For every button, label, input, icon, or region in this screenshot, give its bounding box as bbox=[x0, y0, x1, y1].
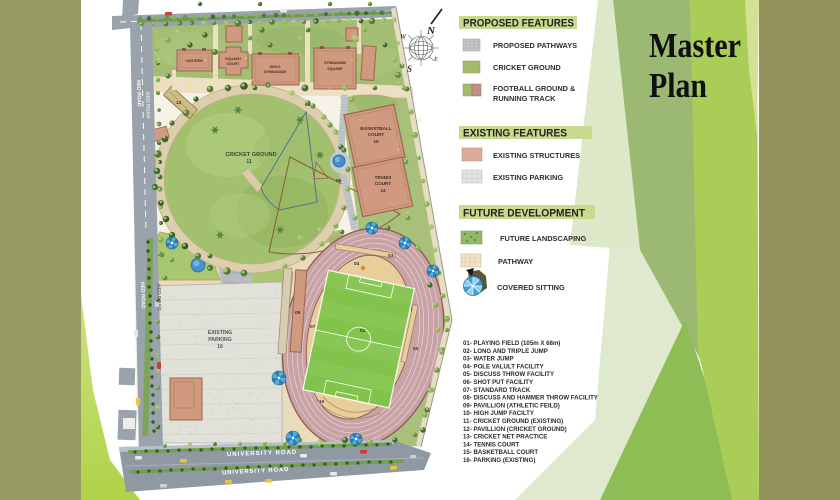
svg-text:13- CRICKET NET PRACTICE: 13- CRICKET NET PRACTICE bbox=[463, 434, 547, 441]
svg-text:Master: Master bbox=[649, 26, 741, 65]
svg-text:04: 04 bbox=[354, 261, 360, 267]
svg-text:TENNIS: TENNIS bbox=[375, 175, 392, 180]
svg-text:FUTURE DEVELOPMENT: FUTURE DEVELOPMENT bbox=[463, 208, 585, 220]
svg-text:11- CRICKET GROUND (EXISTING): 11- CRICKET GROUND (EXISTING) bbox=[463, 418, 563, 425]
svg-text:COURT: COURT bbox=[227, 62, 241, 66]
svg-text:NED ROAD: NED ROAD bbox=[155, 284, 162, 311]
svg-text:15: 15 bbox=[373, 139, 379, 144]
svg-text:NED ROAD: NED ROAD bbox=[144, 92, 151, 119]
svg-text:16- PARKING (EXISTING): 16- PARKING (EXISTING) bbox=[463, 457, 535, 464]
svg-text:07: 07 bbox=[310, 324, 316, 330]
svg-text:14- TENNIS COURT: 14- TENNIS COURT bbox=[463, 441, 519, 448]
svg-text:16: 16 bbox=[217, 344, 223, 350]
svg-text:03: 03 bbox=[388, 253, 394, 259]
svg-text:BASKETBALL: BASKETBALL bbox=[360, 126, 391, 131]
svg-text:06- SHOT PUT FACILITY: 06- SHOT PUT FACILITY bbox=[463, 379, 533, 386]
svg-text:CANTEEN: CANTEEN bbox=[185, 59, 203, 63]
svg-text:GYMNASIUM: GYMNASIUM bbox=[324, 61, 346, 65]
svg-text:FOOTBALL GROUND &: FOOTBALL GROUND & bbox=[493, 84, 576, 93]
svg-text:10: 10 bbox=[319, 399, 325, 405]
svg-text:11: 11 bbox=[246, 159, 252, 165]
svg-text:08- DISCUSS AND HAMMER THROW: 08- DISCUSS AND HAMMER THROW FACILITY bbox=[463, 395, 598, 402]
svg-text:10- HIGH JUMP FACILTY: 10- HIGH JUMP FACILTY bbox=[463, 410, 534, 417]
svg-text:07- STANDARD TRACK: 07- STANDARD TRACK bbox=[463, 387, 531, 394]
svg-text:GYMNASIUM: GYMNASIUM bbox=[264, 70, 286, 74]
svg-text:02- LONG AND TRIPLE JUMP: 02- LONG AND TRIPLE JUMP bbox=[463, 348, 548, 355]
svg-text:03- WATER JUMP: 03- WATER JUMP bbox=[463, 356, 514, 363]
svg-text:NED ROAD: NED ROAD bbox=[135, 80, 142, 107]
svg-text:EXISTING FEATURES: EXISTING FEATURES bbox=[463, 128, 567, 140]
svg-text:PROPOSED PATHWAYS: PROPOSED PATHWAYS bbox=[493, 41, 577, 50]
svg-text:Plan: Plan bbox=[649, 66, 707, 105]
svg-text:13: 13 bbox=[176, 100, 182, 106]
svg-text:09- PAVILLION (ATHLETIC FEILD: 09- PAVILLION (ATHLETIC FEILD) bbox=[463, 402, 560, 409]
svg-text:15- BASKETBALL COURT: 15- BASKETBALL COURT bbox=[463, 449, 538, 456]
svg-text:06: 06 bbox=[336, 178, 342, 184]
svg-text:SQUASH: SQUASH bbox=[225, 57, 241, 61]
svg-text:COVERED SITTING: COVERED SITTING bbox=[497, 283, 565, 292]
svg-text:04- POLE VALULT FACILITY: 04- POLE VALULT FACILITY bbox=[463, 363, 544, 370]
svg-text:PARKING: PARKING bbox=[208, 337, 232, 343]
svg-text:CRICKET GROUND: CRICKET GROUND bbox=[493, 63, 561, 72]
svg-text:EXISTING STRUCTURES: EXISTING STRUCTURES bbox=[493, 151, 580, 160]
svg-text:COURT: COURT bbox=[368, 132, 385, 137]
svg-text:SQUARE: SQUARE bbox=[327, 67, 343, 71]
svg-text:05- DISCUSS THROW FACILITY: 05- DISCUSS THROW FACILITY bbox=[463, 371, 554, 378]
svg-text:CRICKET GROUND: CRICKET GROUND bbox=[225, 152, 276, 158]
svg-text:N: N bbox=[426, 25, 436, 37]
svg-text:E: E bbox=[433, 57, 438, 63]
svg-text:FUTURE LANDSCAPING: FUTURE LANDSCAPING bbox=[500, 234, 586, 243]
svg-text:14: 14 bbox=[380, 188, 386, 193]
svg-text:PATHWAY: PATHWAY bbox=[498, 257, 533, 266]
svg-text:RUNNING TRACK: RUNNING TRACK bbox=[493, 94, 556, 103]
svg-text:COURT: COURT bbox=[375, 181, 392, 186]
svg-text:EXISTING PARKING: EXISTING PARKING bbox=[493, 173, 563, 182]
svg-text:NED ROAD: NED ROAD bbox=[139, 282, 146, 309]
svg-text:W: W bbox=[400, 33, 407, 41]
svg-text:01- PLAYING FIELD (105m X 68m: 01- PLAYING FIELD (105m X 68m) bbox=[463, 340, 560, 347]
svg-text:GIRLS: GIRLS bbox=[270, 65, 282, 69]
svg-text:09: 09 bbox=[295, 310, 301, 316]
svg-text:02: 02 bbox=[413, 346, 419, 352]
svg-text:PROPOSED FEATURES: PROPOSED FEATURES bbox=[463, 18, 574, 30]
svg-text:12- PAVILLION (CRICKET GROUND: 12- PAVILLION (CRICKET GROUND) bbox=[463, 426, 567, 433]
svg-text:EXISTING: EXISTING bbox=[208, 330, 232, 336]
svg-text:S: S bbox=[407, 64, 412, 74]
svg-text:01: 01 bbox=[360, 328, 366, 334]
